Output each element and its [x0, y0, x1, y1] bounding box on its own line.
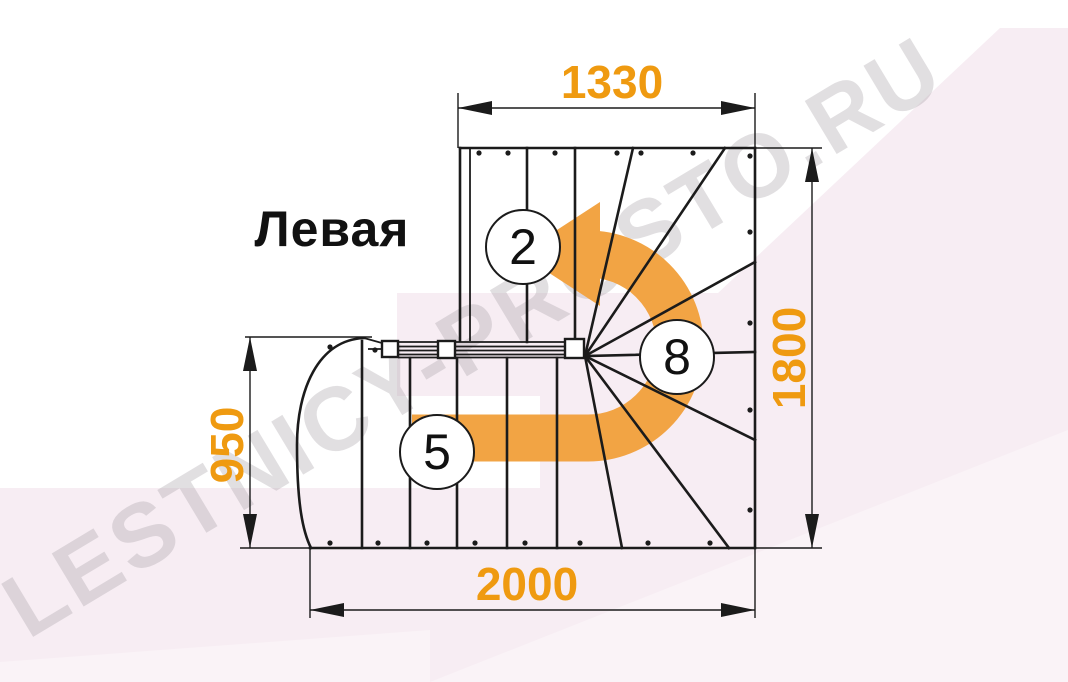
dimension-label-right: 1800 — [766, 307, 812, 409]
dimension-label-top: 1330 — [561, 59, 663, 105]
step-badge-winder: 8 — [639, 319, 715, 395]
dimension-label-left: 950 — [204, 407, 250, 484]
dimension-label-bottom: 2000 — [476, 561, 578, 607]
newel-post — [438, 341, 455, 358]
newel-post — [382, 341, 398, 357]
stair-plan-page: LESTNICY-PROSTO.RU — [0, 0, 1068, 682]
step-badge-upper-flight: 2 — [485, 209, 561, 285]
orientation-label: Левая — [255, 204, 410, 254]
step-badge-lower-flight: 5 — [399, 414, 475, 490]
center-newel-post — [565, 339, 584, 358]
